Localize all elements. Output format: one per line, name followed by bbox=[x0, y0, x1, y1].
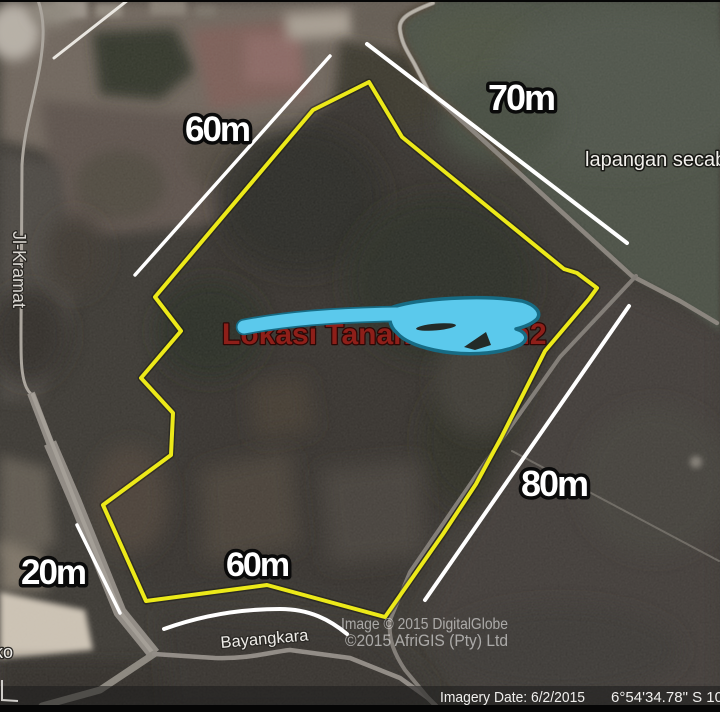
svg-text:©2015 AfriGIS (Pty) Ltd: ©2015 AfriGIS (Pty) Ltd bbox=[345, 631, 508, 650]
svg-text:60m: 60m bbox=[226, 546, 289, 584]
svg-text:lapangan secab: lapangan secab bbox=[585, 149, 720, 171]
svg-text:70m: 70m bbox=[488, 77, 554, 118]
svg-text:20m: 20m bbox=[21, 553, 85, 592]
svg-text:60m: 60m bbox=[185, 110, 249, 149]
svg-text:Imagery Date: 6/2/2015: Imagery Date: 6/2/2015 bbox=[440, 689, 585, 706]
svg-text:6°54'34.78" S 10: 6°54'34.78" S 10 bbox=[611, 689, 720, 706]
svg-text:ko: ko bbox=[0, 642, 13, 662]
svg-text:Jl-Kramat: Jl-Kramat bbox=[9, 231, 29, 308]
svg-text:80m: 80m bbox=[521, 463, 587, 504]
